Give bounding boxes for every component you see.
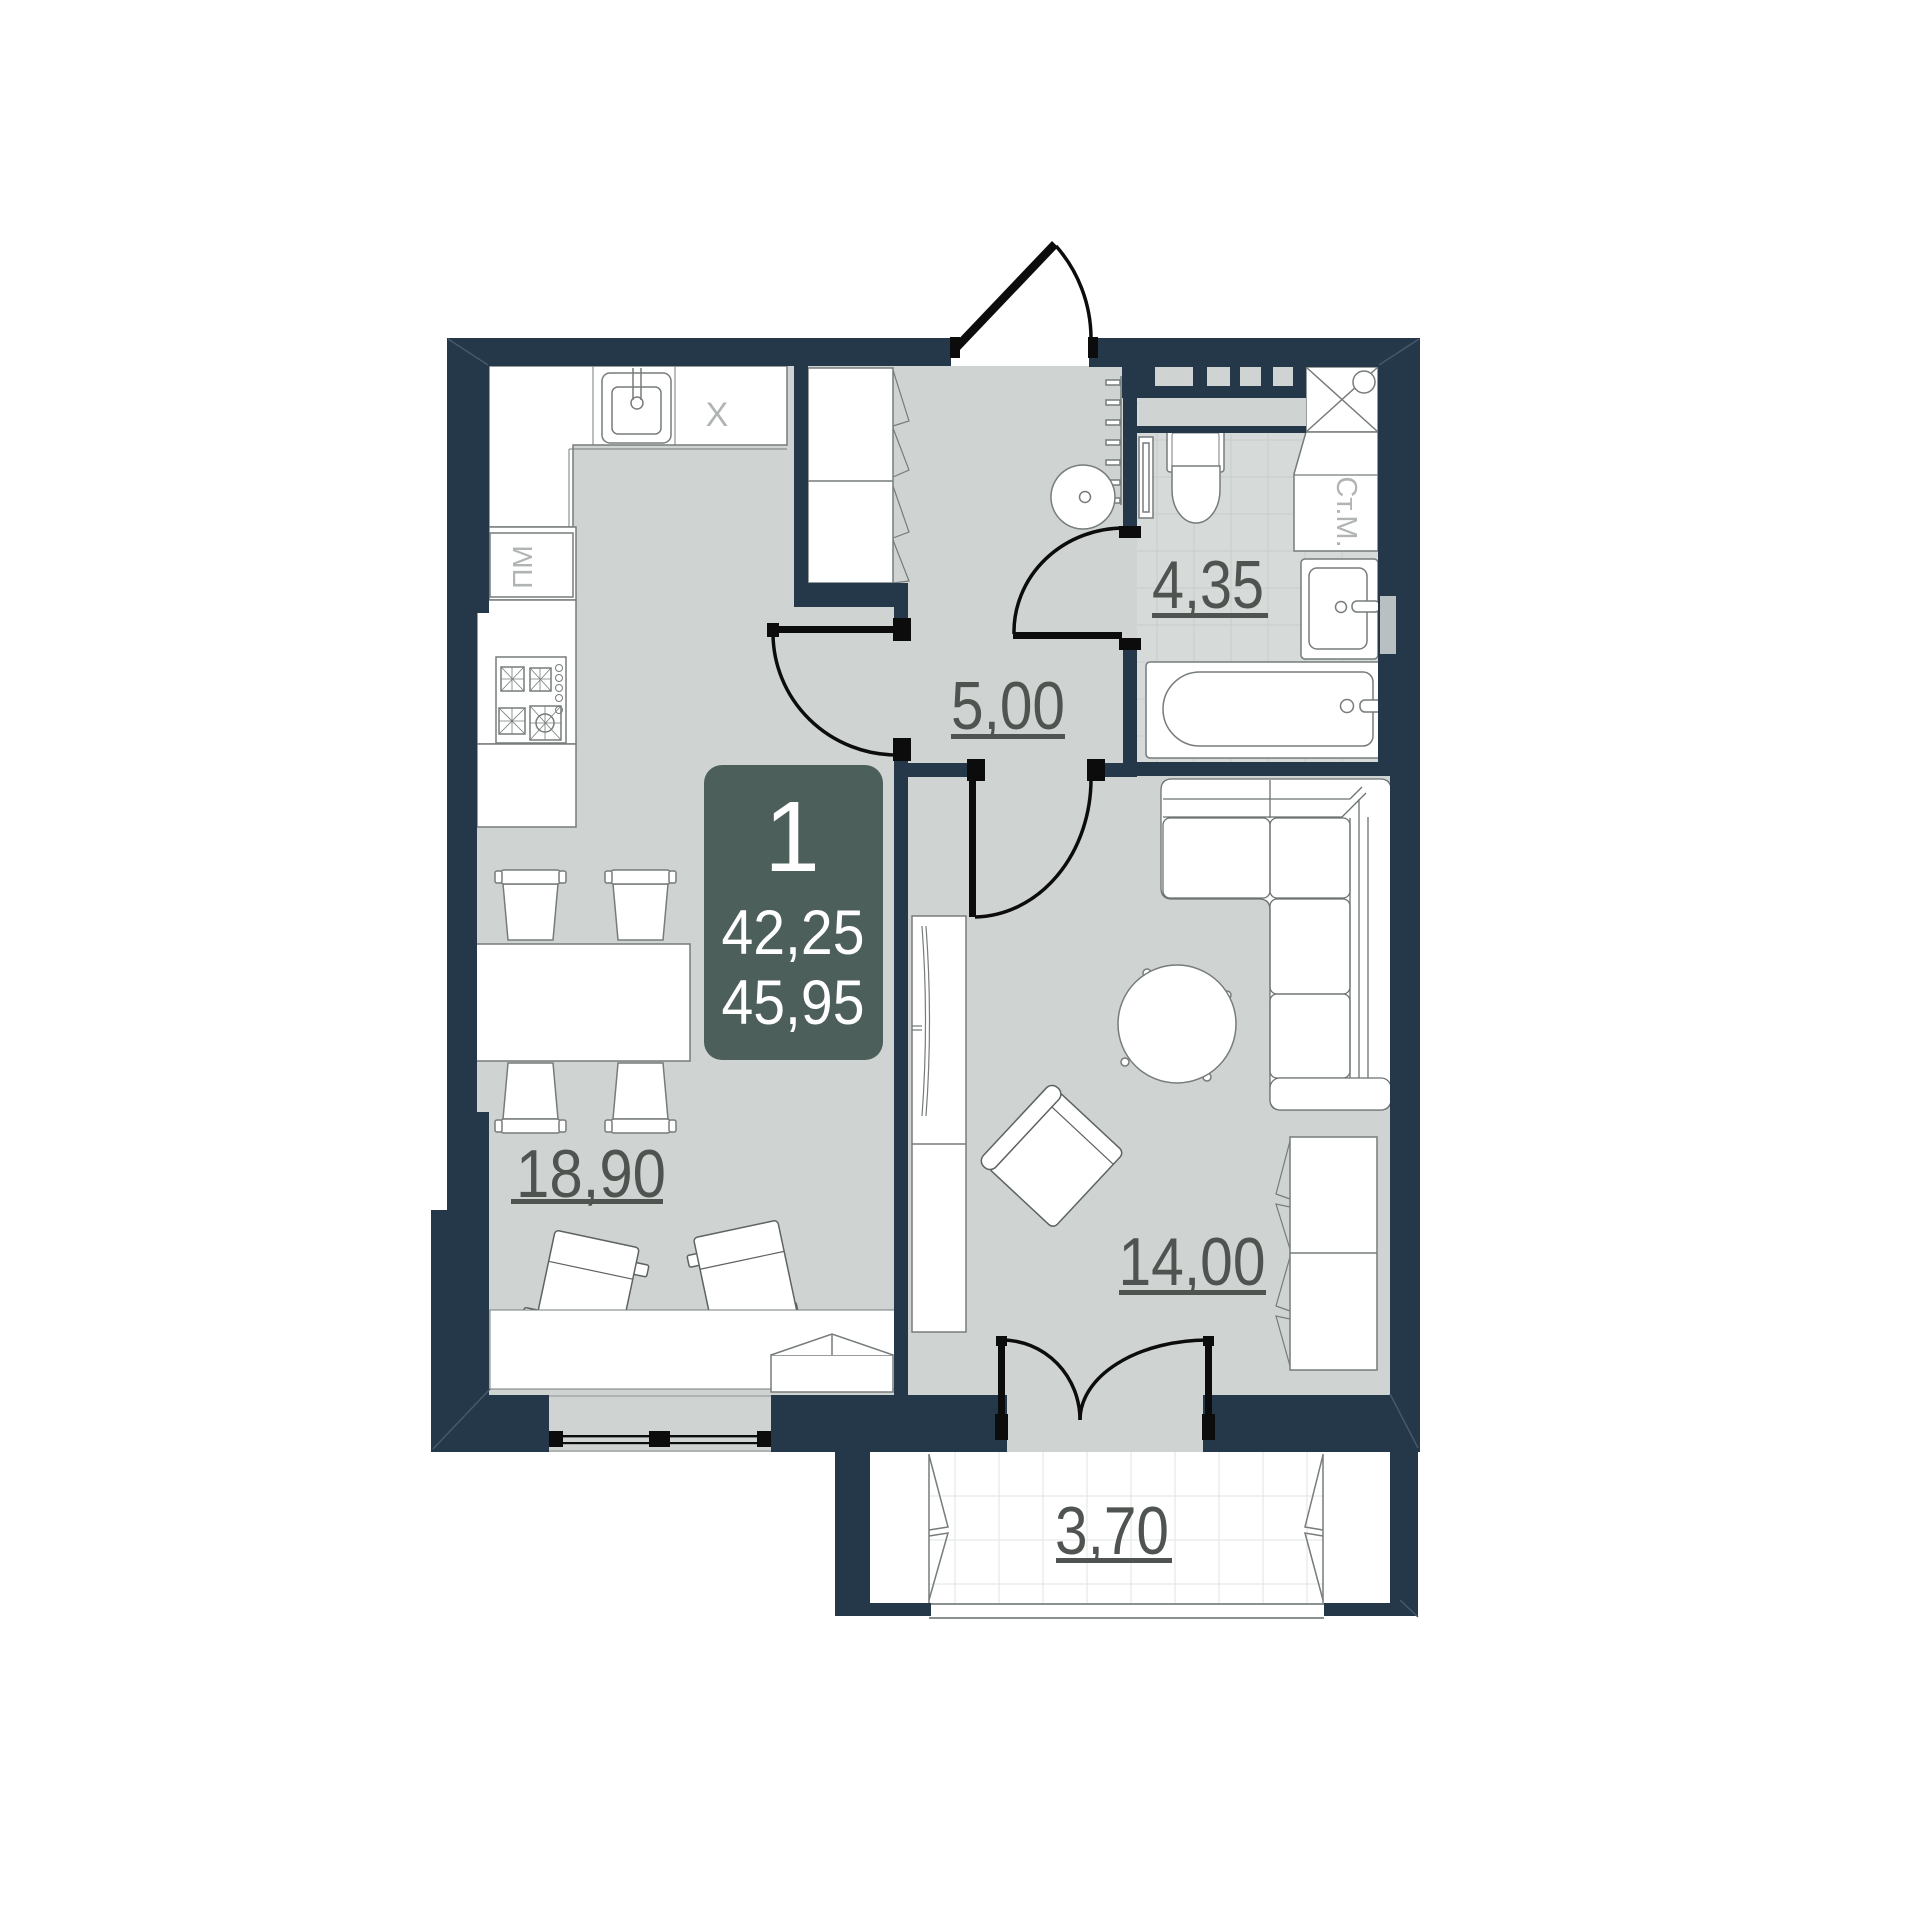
svg-text:ПМ: ПМ xyxy=(507,545,538,588)
svg-text:45,95: 45,95 xyxy=(722,968,865,1038)
svg-text:14,00: 14,00 xyxy=(1119,1224,1266,1300)
svg-text:1: 1 xyxy=(764,781,820,893)
svg-text:Ст.М.: Ст.М. xyxy=(1330,476,1362,547)
svg-text:5,00: 5,00 xyxy=(951,668,1065,744)
svg-text:4,35: 4,35 xyxy=(1152,547,1264,623)
svg-text:42,25: 42,25 xyxy=(722,898,865,968)
svg-text:3,70: 3,70 xyxy=(1055,1493,1169,1569)
svg-text:X: X xyxy=(706,396,729,434)
